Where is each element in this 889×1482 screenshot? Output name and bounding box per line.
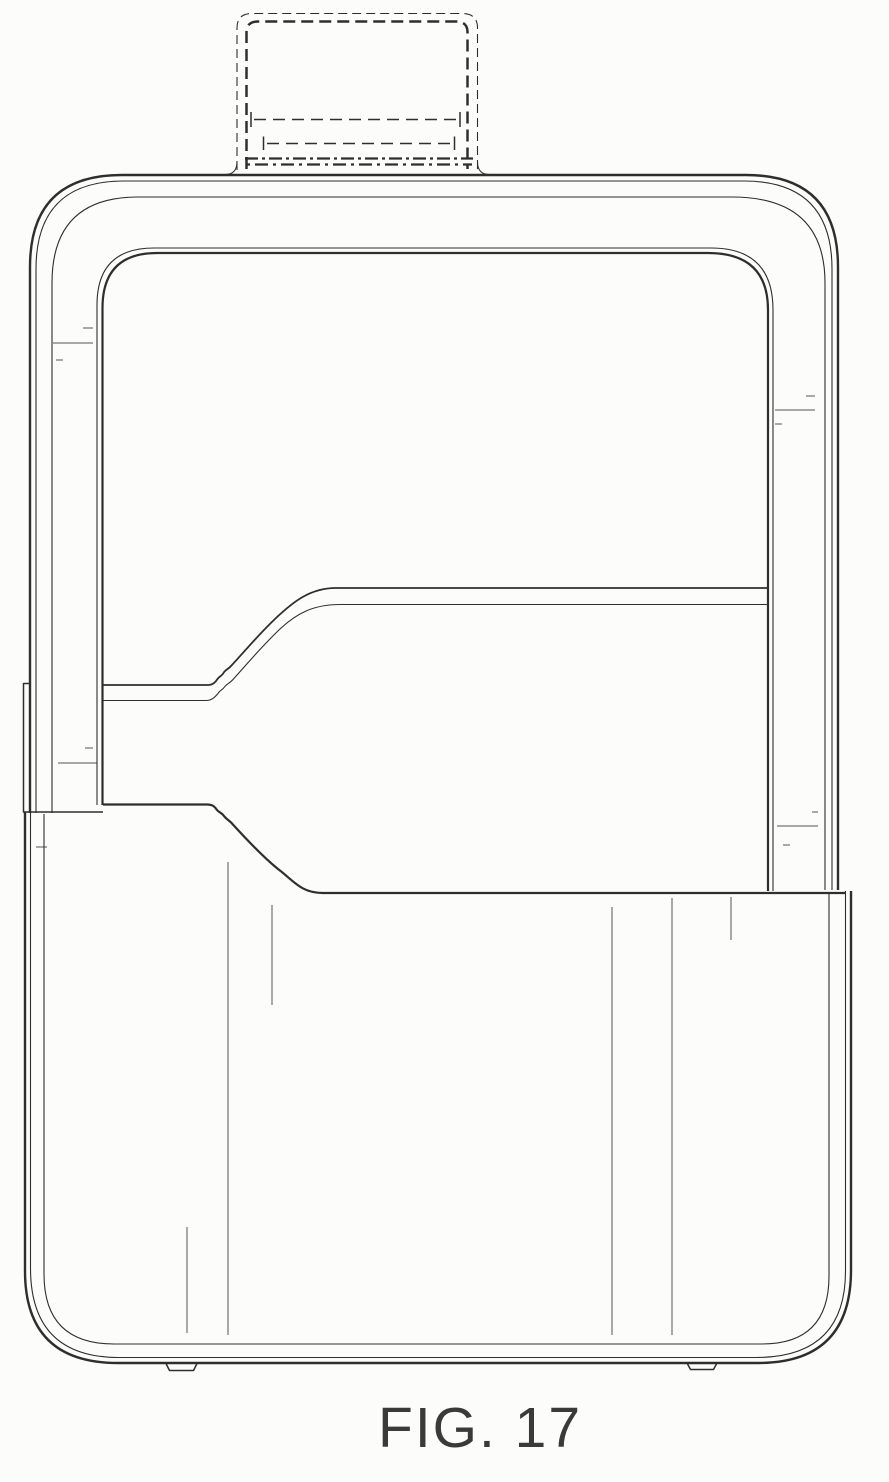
inner-frame-window — [97, 248, 773, 891]
window-inner-line — [103, 253, 769, 891]
phantom-inner-outline — [247, 22, 468, 170]
bottle-top-second-contour — [103, 605, 768, 701]
shading-ticks — [36, 328, 818, 1335]
upper-ring-inner-contour — [52, 197, 825, 890]
bottle-bottom-contour-and-tank-top — [103, 805, 846, 894]
figure-caption: FIG. 17 — [378, 1400, 582, 1457]
window-outer-line — [97, 248, 773, 891]
tank-outer-edge — [25, 812, 851, 1363]
device-body-outline — [30, 175, 838, 890]
shading-lines — [36, 328, 818, 1335]
upper-ring-outer-edge — [30, 175, 838, 890]
phantom-top-cover — [225, 14, 490, 175]
bottle-shaped-channel — [24, 588, 847, 893]
water-tank — [25, 812, 851, 1371]
bottle-top-contour — [103, 588, 768, 685]
patent-line-drawing — [0, 0, 889, 1482]
upper-ring-second-edge — [36, 181, 832, 890]
phantom-outer-outline — [237, 14, 478, 171]
patent-figure-page: FIG. 17 — [0, 0, 889, 1482]
